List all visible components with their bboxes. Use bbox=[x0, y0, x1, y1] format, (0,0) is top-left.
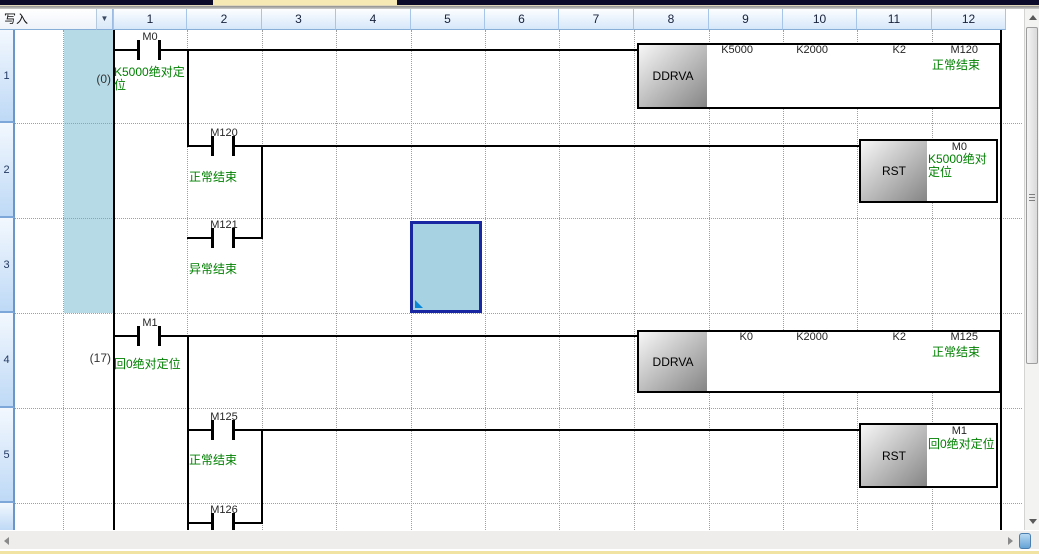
contact-m0[interactable] bbox=[137, 40, 162, 60]
comment-rung1: K5000绝对定位 bbox=[114, 66, 186, 92]
scroll-down-button[interactable] bbox=[1026, 512, 1039, 530]
grid-line bbox=[15, 313, 1022, 314]
column-header-4: 4 bbox=[336, 9, 411, 30]
contact-m1[interactable] bbox=[137, 326, 162, 346]
horizontal-scrollbar-thumb[interactable] bbox=[1019, 533, 1031, 549]
contact-m121[interactable] bbox=[211, 228, 236, 248]
column-header-6: 6 bbox=[485, 9, 559, 30]
column-header-3: 3 bbox=[262, 9, 336, 30]
ddrva-1-param-1: K5000 bbox=[705, 44, 753, 56]
ddrva-1-param-3: K2 bbox=[858, 44, 906, 56]
vertical-scrollbar-thumb[interactable] bbox=[1026, 27, 1038, 364]
grid-line bbox=[63, 30, 64, 530]
ddrva-1-result-comment: 正常结束 bbox=[932, 59, 992, 72]
ladder-editor-window: 写入 ▼ 1 2 3 4 5 6 7 8 9 10 11 12 1 2 3 4 … bbox=[0, 0, 1039, 555]
horizontal-scrollbar[interactable] bbox=[0, 531, 1039, 549]
ddrva-2-param-2: K2000 bbox=[780, 331, 828, 343]
contact-m120[interactable] bbox=[211, 136, 236, 156]
rung-1-line bbox=[114, 49, 638, 51]
branch-line bbox=[261, 145, 263, 239]
selected-cell-cursor[interactable] bbox=[410, 221, 482, 313]
row-number-6-partial bbox=[0, 503, 15, 530]
window-bottom-edge bbox=[0, 551, 1039, 554]
comment-rung4: 回0绝对定位 bbox=[114, 358, 194, 371]
row-number-5: 5 bbox=[0, 408, 15, 503]
contact-m1-label: M1 bbox=[125, 317, 175, 329]
ddrva-1-param-2: K2000 bbox=[780, 44, 828, 56]
rst-2-name: RST bbox=[861, 425, 927, 486]
grid-line bbox=[15, 218, 1022, 219]
contact-m126-label: M126 bbox=[199, 504, 249, 516]
row-number-3: 3 bbox=[0, 218, 15, 313]
arrow-up-icon bbox=[1029, 15, 1037, 20]
column-header-10: 10 bbox=[783, 9, 857, 30]
cell-edit-marker-icon bbox=[415, 300, 423, 308]
rung-5-line bbox=[187, 429, 860, 431]
left-power-rail bbox=[113, 30, 115, 530]
grid-line bbox=[485, 30, 486, 530]
vertical-scrollbar[interactable] bbox=[1024, 9, 1039, 530]
comment-m125: 正常结束 bbox=[189, 454, 249, 467]
arrow-left-icon bbox=[4, 537, 9, 545]
grid-line bbox=[15, 123, 1022, 124]
branch-line bbox=[261, 429, 263, 524]
ddrva-2-param-3: K2 bbox=[858, 331, 906, 343]
rung-2-line bbox=[187, 145, 860, 147]
rst-1-operand-comment: K5000绝对定位 bbox=[928, 153, 998, 179]
step-number-0: (0) bbox=[73, 72, 111, 86]
comment-m120: 正常结束 bbox=[189, 171, 249, 184]
grid-line bbox=[559, 30, 560, 530]
ddrva-1-name: DDRVA bbox=[639, 45, 707, 107]
contact-m121-label: M121 bbox=[199, 219, 249, 231]
thumb-grip-icon bbox=[1029, 194, 1035, 202]
column-header-8: 8 bbox=[634, 9, 709, 30]
grid-line bbox=[15, 503, 1022, 504]
scroll-right-button[interactable] bbox=[1008, 537, 1013, 545]
ddrva-2-param-1: K0 bbox=[705, 331, 753, 343]
contact-m0-label: M0 bbox=[125, 31, 175, 43]
column-header-5: 5 bbox=[411, 9, 485, 30]
rung-4-line bbox=[114, 335, 638, 337]
scroll-left-button[interactable] bbox=[4, 537, 9, 545]
column-header-7: 7 bbox=[559, 9, 634, 30]
column-header-1: 1 bbox=[113, 9, 187, 30]
row-number-4: 4 bbox=[0, 313, 15, 408]
step-number-17: (17) bbox=[73, 351, 111, 365]
grid-line bbox=[336, 30, 337, 530]
row-number-1: 1 bbox=[0, 30, 15, 123]
column-header-12: 12 bbox=[932, 9, 1006, 30]
comment-m121: 异常结束 bbox=[189, 263, 249, 276]
rst-2-operand-comment: 回0绝对定位 bbox=[928, 438, 1000, 451]
column-header-2: 2 bbox=[187, 9, 262, 30]
write-mode-label: 写入 bbox=[0, 9, 97, 30]
contact-m125[interactable] bbox=[211, 420, 236, 440]
row-number-2: 2 bbox=[0, 123, 15, 218]
scroll-up-button[interactable] bbox=[1026, 9, 1039, 26]
ddrva-2-result-comment: 正常结束 bbox=[932, 346, 992, 359]
column-header-9: 9 bbox=[709, 9, 783, 30]
contact-m120-label: M120 bbox=[199, 127, 249, 139]
contact-m125-label: M125 bbox=[199, 411, 249, 423]
arrow-down-icon bbox=[1029, 519, 1037, 524]
ddrva-1-param-4: M120 bbox=[930, 44, 978, 56]
branch-line bbox=[187, 49, 189, 147]
column-header-11: 11 bbox=[857, 9, 932, 30]
chevron-down-icon[interactable]: ▼ bbox=[97, 9, 113, 30]
grid-line bbox=[15, 408, 1022, 409]
arrow-right-icon bbox=[1008, 537, 1013, 545]
grid-line bbox=[634, 30, 635, 530]
rst-2-operand: M1 bbox=[925, 425, 967, 437]
rst-1-name: RST bbox=[861, 141, 927, 201]
ddrva-2-param-4: M125 bbox=[930, 331, 978, 343]
ddrva-2-name: DDRVA bbox=[639, 332, 707, 391]
